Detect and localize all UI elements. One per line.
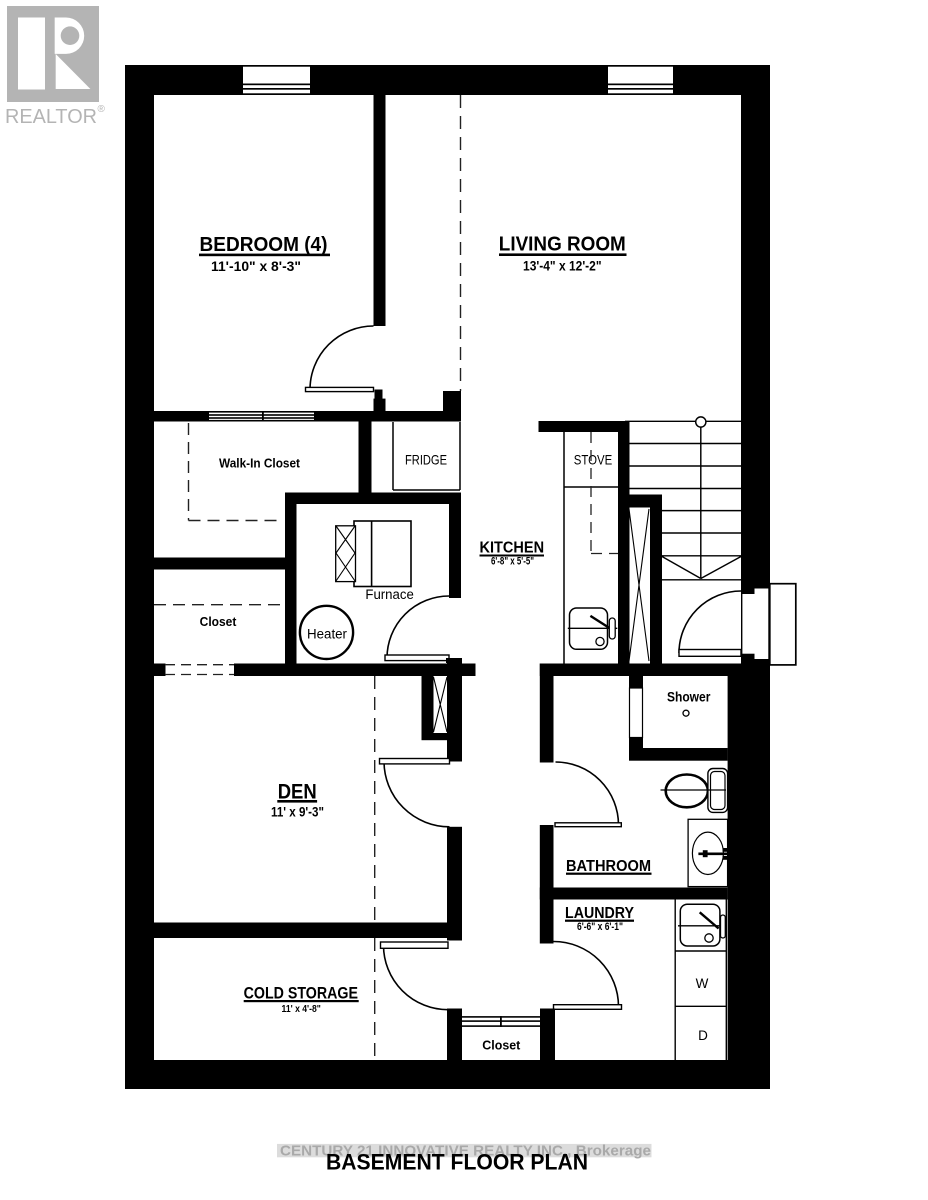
svg-text:LAUNDRY: LAUNDRY <box>565 905 634 922</box>
svg-text:11'-10" x 8'-3": 11'-10" x 8'-3" <box>211 258 301 274</box>
svg-text:6'-6" x 6'-1": 6'-6" x 6'-1" <box>577 921 623 933</box>
svg-text:REALTOR: REALTOR <box>5 105 97 128</box>
svg-text:BASEMENT FLOOR PLAN: BASEMENT FLOOR PLAN <box>326 1149 588 1174</box>
svg-text:BEDROOM (4): BEDROOM (4) <box>200 234 328 256</box>
svg-text:LIVING ROOM: LIVING ROOM <box>499 233 626 255</box>
svg-text:KITCHEN: KITCHEN <box>480 539 545 556</box>
svg-text:Closet: Closet <box>200 614 237 629</box>
svg-text:Walk-In Closet: Walk-In Closet <box>219 456 301 471</box>
svg-text:W: W <box>696 976 709 991</box>
svg-text:Heater: Heater <box>307 626 347 641</box>
svg-text:11' x 9'-3": 11' x 9'-3" <box>271 805 324 820</box>
svg-text:®: ® <box>98 104 106 115</box>
svg-text:FRIDGE: FRIDGE <box>405 452 447 468</box>
svg-text:13'-4" x 12'-2": 13'-4" x 12'-2" <box>523 257 602 273</box>
svg-text:11' x 4'-8": 11' x 4'-8" <box>282 1003 321 1015</box>
svg-text:Furnace: Furnace <box>365 587 413 602</box>
svg-text:Shower: Shower <box>667 689 711 705</box>
svg-text:STOVE: STOVE <box>574 451 613 467</box>
svg-text:BATHROOM: BATHROOM <box>566 858 651 875</box>
svg-text:COLD STORAGE: COLD STORAGE <box>244 984 358 1003</box>
svg-text:Closet: Closet <box>482 1037 521 1052</box>
svg-text:6'-8" x 5'-5": 6'-8" x 5'-5" <box>491 556 534 568</box>
svg-text:D: D <box>698 1028 708 1043</box>
